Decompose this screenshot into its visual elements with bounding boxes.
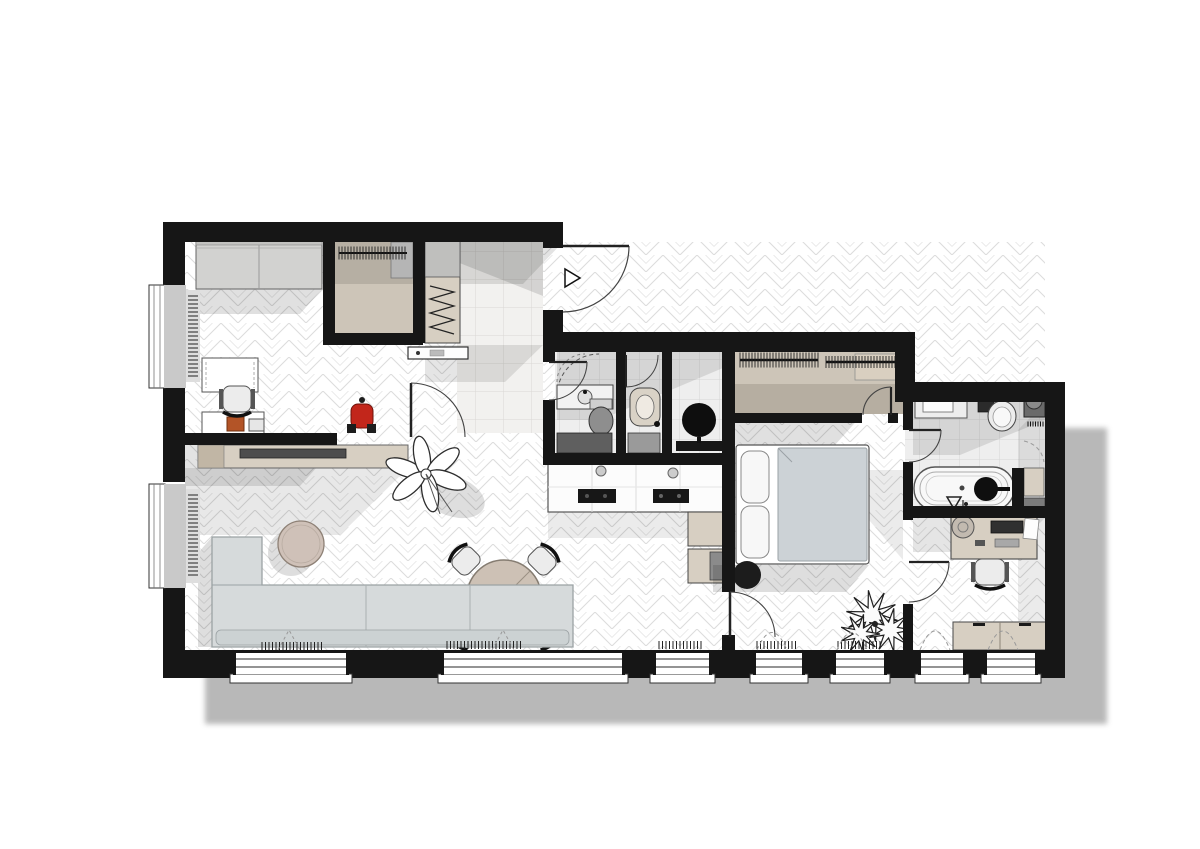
iwall-bath1-west-a	[543, 352, 555, 362]
window-left2-glass	[164, 484, 186, 588]
window-left2-sill	[149, 484, 165, 588]
iwall-bath2-south	[903, 506, 1065, 518]
red-toy-knob	[359, 397, 365, 403]
sofa1-shadow	[196, 289, 322, 314]
window-left1-sill	[149, 285, 165, 388]
desk-laptop	[249, 419, 264, 431]
tv-cabinet-left	[198, 445, 224, 468]
wall-top	[163, 222, 563, 242]
nook-basin-stem	[697, 437, 701, 443]
office-monitor	[991, 521, 1023, 533]
wall-entry-jamb-top	[543, 222, 563, 248]
kitchen-knob2	[668, 468, 678, 478]
sofa-shadow	[198, 537, 212, 647]
floorplan-canvas	[0, 0, 1200, 849]
wc2-cabinet	[628, 433, 660, 453]
red-toy-leg2	[367, 424, 376, 433]
wall-left-mid	[163, 388, 185, 482]
bed-pillow2	[741, 506, 769, 558]
iwall-room1-south	[185, 433, 337, 445]
kitchen-knob1	[596, 466, 606, 476]
window-bottom-3	[650, 652, 715, 683]
toilet2-seat	[993, 407, 1011, 427]
bath1-faucet	[583, 390, 587, 394]
wall-bath2-top	[895, 382, 1065, 402]
wall-mid	[543, 332, 915, 352]
sink-dot1	[585, 494, 589, 498]
floor-plan	[149, 222, 1107, 724]
iwall-bedroom-west	[722, 352, 735, 592]
tv-screen	[240, 449, 346, 458]
monstera-center	[872, 621, 878, 627]
window-bottom-4	[750, 652, 808, 683]
red-toy-leg1	[347, 424, 356, 433]
hob-dot2	[677, 494, 681, 498]
kitchen-sink	[578, 489, 616, 503]
wall-left-bottom	[163, 586, 185, 678]
iwall-bedroom-west-stub	[722, 635, 735, 650]
console-item-tray	[430, 350, 444, 356]
wall-left-top	[163, 222, 185, 285]
bed-blanket	[778, 448, 867, 561]
iwall-closet1	[323, 242, 335, 345]
window-bottom-1	[230, 652, 352, 683]
window-bottom-7	[981, 652, 1041, 683]
iwall-wardrobe	[413, 222, 425, 343]
iwall-bath1-div2	[662, 352, 672, 455]
toilet1-bowl	[589, 407, 613, 435]
kitchen-tall-unit1	[688, 512, 727, 546]
window-bottom-5	[830, 652, 890, 683]
hob-dot1	[659, 494, 663, 498]
desk-orange-box	[227, 417, 244, 431]
wc2-flush-dot	[654, 421, 660, 427]
bath1-cabinet-dark	[557, 433, 612, 453]
wc2-toilet-seat	[636, 395, 654, 419]
floorplan-page	[0, 0, 1200, 849]
study-chair	[219, 386, 255, 416]
bed-pillow1	[741, 451, 769, 503]
iwall-bath2-west-a	[903, 402, 913, 430]
closet-hangers-1	[740, 353, 818, 368]
washer-vent	[1028, 422, 1043, 427]
tub-drain	[960, 486, 965, 491]
wall-right	[1045, 382, 1065, 678]
office-lamp	[952, 516, 974, 538]
kitchen-hob	[653, 489, 689, 503]
sink-dot2	[603, 494, 607, 498]
coffee-table	[278, 521, 324, 567]
bath2-shelf	[1024, 468, 1044, 496]
office-chair	[971, 559, 1009, 589]
radiator-left2-fins	[188, 495, 198, 575]
bedroom-closet-lower-band	[735, 384, 903, 414]
radiator-left1-fins	[188, 296, 198, 376]
nook-round-basin	[682, 403, 716, 437]
bedside-table	[733, 561, 761, 589]
iwall-closet1-south	[323, 333, 423, 345]
console-item-dot	[416, 351, 420, 355]
sideboard-handle1	[973, 623, 985, 626]
window-left1-glass	[164, 285, 186, 388]
iwall-bath1-div1	[616, 352, 626, 455]
tub-symbol-dot	[964, 502, 968, 506]
office-keyboard	[995, 539, 1019, 547]
iwall-lobby-jamb	[888, 413, 898, 423]
sideboard-handle2	[1019, 623, 1031, 626]
iwall-tub-east	[1012, 468, 1024, 506]
window-bottom-6	[915, 652, 969, 683]
iwall-bath1-south	[543, 453, 733, 465]
office-paper	[1023, 518, 1039, 539]
window-bottom-2	[438, 652, 628, 683]
iwall-office-west	[903, 604, 913, 650]
office-phone	[975, 540, 985, 546]
iwall-closet2-south	[733, 413, 862, 423]
